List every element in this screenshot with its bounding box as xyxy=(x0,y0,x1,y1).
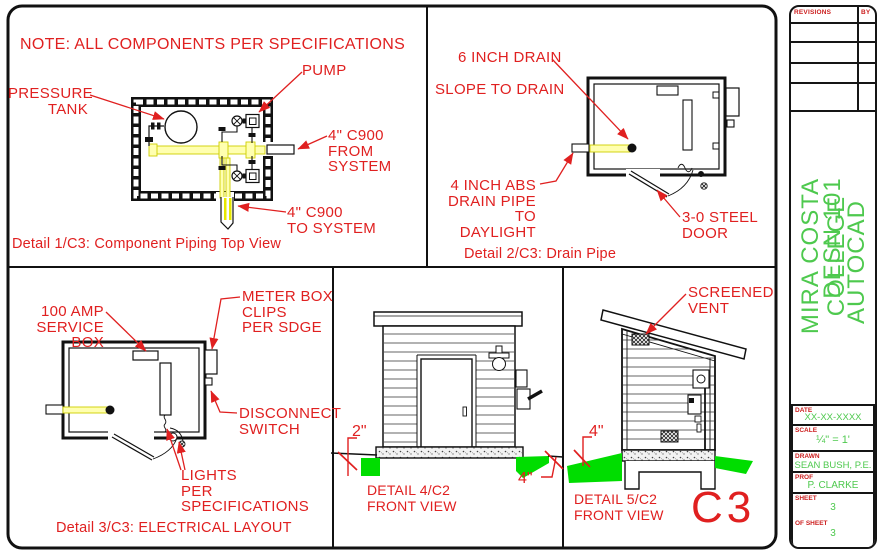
sheet-code: C3 xyxy=(691,486,755,530)
leader-to-system xyxy=(238,206,286,212)
label-from-system: 4" C900 FROM SYSTEM xyxy=(328,128,391,175)
label-service-box: 100 AMP SERVICE BOX xyxy=(8,304,104,351)
field-scale: SCALE ¼" = 1' xyxy=(791,424,875,452)
dim-2-inch: 2" xyxy=(352,423,367,441)
pipe-entry-dot xyxy=(106,406,115,415)
label-to-system: 4" C900 TO SYSTEM xyxy=(287,205,376,236)
caption-detail-5: DETAIL 5/C2 FRONT VIEW xyxy=(574,492,664,523)
prof-value: P. CLARKE xyxy=(793,480,873,491)
panel-rect xyxy=(160,363,171,415)
slab xyxy=(376,447,523,458)
caption-detail-4: DETAIL 4/C2 FRONT VIEW xyxy=(367,483,457,514)
meter-box-rect xyxy=(205,350,217,374)
label-6-inch-drain: 6 INCH DRAIN xyxy=(458,50,562,66)
sheet-value: 3 xyxy=(793,502,873,513)
slab xyxy=(622,450,715,461)
label-meter-box: METER BOX CLIPS PER SDGE xyxy=(242,289,333,336)
leader-pump xyxy=(259,72,302,112)
detail-5-drawing xyxy=(567,310,753,489)
pipe-from-system xyxy=(267,145,294,154)
detail-3-drawing xyxy=(46,342,217,460)
scale-value: ¼" = 1' xyxy=(793,434,873,446)
label-steel-door: 3-0 STEEL DOOR xyxy=(682,210,758,241)
dim-4-inch-right: 4" xyxy=(518,470,533,488)
dim-4-inch: 4" xyxy=(589,423,604,441)
detail-4-drawing xyxy=(331,312,563,478)
pressure-tank-circle xyxy=(165,111,197,143)
exterior-electrical xyxy=(516,370,542,409)
field-prof: PROF P. CLARKE xyxy=(791,471,875,494)
leader-meter-box xyxy=(212,297,240,349)
of-sheet-value: 3 xyxy=(793,528,873,539)
floor-drain xyxy=(628,144,637,153)
label-slope-to-drain: SLOPE TO DRAIN xyxy=(435,82,565,98)
field-date: DATE XX-XX-XXXX xyxy=(791,404,875,426)
leader-from-system xyxy=(298,136,327,149)
field-drawn: DRAWN SEAN BUSH, P.E. xyxy=(791,450,875,473)
screened-vent-lower xyxy=(661,431,678,442)
panel-rect xyxy=(683,100,692,150)
detail-2-drawing xyxy=(572,78,739,197)
label-pressure-tank: PRESSURE TANK xyxy=(8,86,88,117)
caption-detail-2: Detail 2/C3: Drain Pipe xyxy=(464,246,616,262)
grade-left xyxy=(361,458,380,476)
screened-vent-upper xyxy=(632,334,649,345)
label-pump: PUMP xyxy=(302,63,347,79)
revisions-header: REVISIONS xyxy=(794,9,831,16)
door xyxy=(421,359,472,447)
grade-right xyxy=(715,456,753,474)
drawing-sheet: NOTE: ALL COMPONENTS PER SPECIFICATIONS … xyxy=(0,0,885,555)
course-name: DESN 101 xyxy=(820,123,846,353)
title-block: REVISIONS BY MIRA COSTA COLLEGE DESN 101… xyxy=(789,5,877,549)
label-screened-vent: SCREENED VENT xyxy=(688,285,774,316)
caption-detail-1: Detail 1/C3: Component Piping Top View xyxy=(12,236,281,252)
field-sheet: SHEET 3 OF SHEET 3 xyxy=(791,492,875,549)
caption-detail-3: Detail 3/C3: ELECTRICAL LAYOUT xyxy=(56,520,292,536)
label-disconnect-switch: DISCONNECT SWITCH xyxy=(239,406,341,437)
detail-1-drawing xyxy=(132,98,295,230)
note-text: NOTE: ALL COMPONENTS PER SPECIFICATIONS xyxy=(20,37,405,53)
label-lights: LIGHTS PER SPECIFICATIONS xyxy=(181,468,309,515)
drain-pipe-yellow xyxy=(590,145,630,152)
leader-disconnect xyxy=(211,391,237,413)
software-name: AUTOCAD xyxy=(844,147,870,377)
leader-abs-pipe xyxy=(540,153,573,184)
by-header: BY xyxy=(861,9,870,16)
service-box-rect xyxy=(133,351,158,360)
meter-box-rect xyxy=(726,88,739,116)
grade-left xyxy=(567,453,622,483)
date-value: XX-XX-XXXX xyxy=(793,412,873,423)
drawn-value: SEAN BUSH, P.E. xyxy=(793,460,873,471)
label-abs-drain-pipe: 4 INCH ABS DRAIN PIPE TO DAYLIGHT xyxy=(436,178,536,240)
disconnect-rect xyxy=(205,378,212,385)
